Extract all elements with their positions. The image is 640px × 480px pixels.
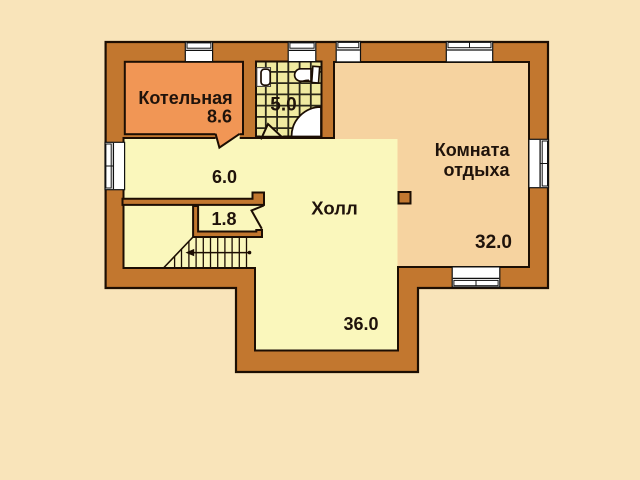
svg-text:1.8: 1.8 [211, 209, 236, 229]
svg-text:36.0: 36.0 [343, 314, 378, 334]
svg-text:5.0: 5.0 [270, 95, 296, 116]
svg-text:отдыха: отдыха [444, 160, 511, 180]
svg-text:Комната: Комната [435, 140, 511, 160]
svg-text:Холл: Холл [311, 198, 357, 219]
svg-text:8.6: 8.6 [207, 107, 232, 127]
svg-text:Котельная: Котельная [138, 88, 232, 108]
svg-text:6.0: 6.0 [212, 167, 237, 187]
svg-text:32.0: 32.0 [475, 232, 512, 253]
